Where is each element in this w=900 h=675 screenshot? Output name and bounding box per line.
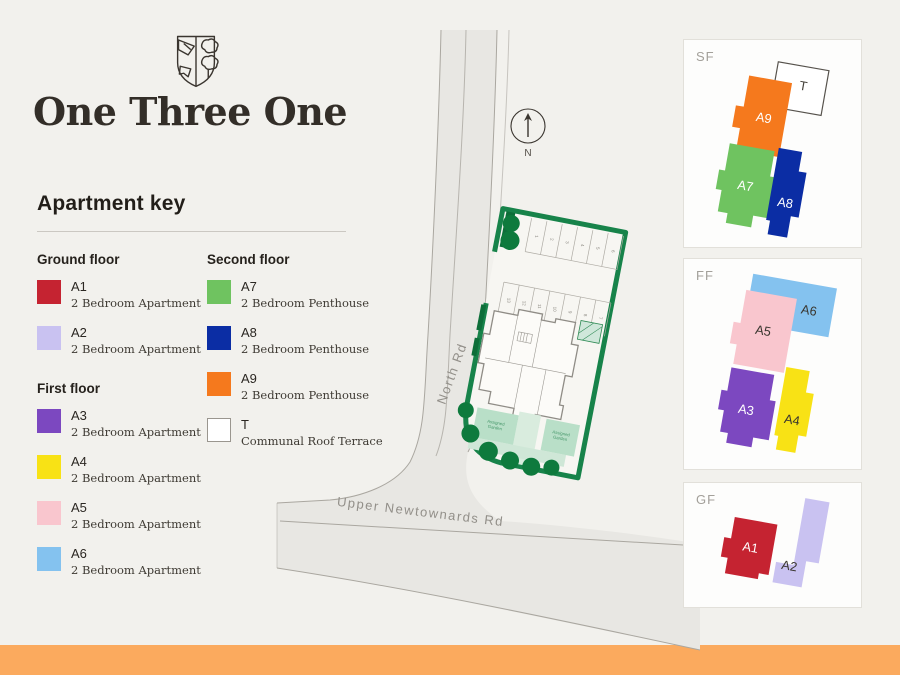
unit-a3-shape: A3 <box>713 366 781 450</box>
svg-text:A2: A2 <box>780 557 798 574</box>
unit-a5-shape: A5 <box>726 289 797 373</box>
svg-text:13: 13 <box>506 298 511 304</box>
svg-text:A3: A3 <box>737 401 755 419</box>
svg-text:A9: A9 <box>755 109 773 127</box>
first-floor-panel: FF A6 A5 A3 A4 <box>683 258 862 470</box>
ff-floorplate: A6 A5 A3 A4 <box>684 259 861 469</box>
unit-a4-shape: A4 <box>772 367 818 454</box>
svg-text:A7: A7 <box>736 177 754 195</box>
unit-a9-shape: A9 <box>728 74 792 157</box>
svg-text:A6: A6 <box>800 301 818 319</box>
gf-floorplate: A1 A2 <box>684 483 861 607</box>
svg-text:A4: A4 <box>783 411 801 429</box>
svg-text:12: 12 <box>522 301 527 307</box>
unit-a1-shape: A1 <box>718 516 777 581</box>
sf-floorplate: T A9 A7 A8 <box>684 40 861 247</box>
unit-a2-shape: A2 <box>772 495 829 590</box>
second-floor-panel: SF T A9 A7 A8 <box>683 39 862 248</box>
compass-n-label: N <box>524 148 531 159</box>
svg-text:A1: A1 <box>741 538 759 555</box>
svg-text:A8: A8 <box>776 194 794 212</box>
ground-floor-panel: GF A1 A2 <box>683 482 862 608</box>
compass: N <box>511 109 545 159</box>
svg-text:A5: A5 <box>754 322 772 340</box>
svg-text:10: 10 <box>552 307 557 313</box>
svg-text:11: 11 <box>537 304 542 309</box>
